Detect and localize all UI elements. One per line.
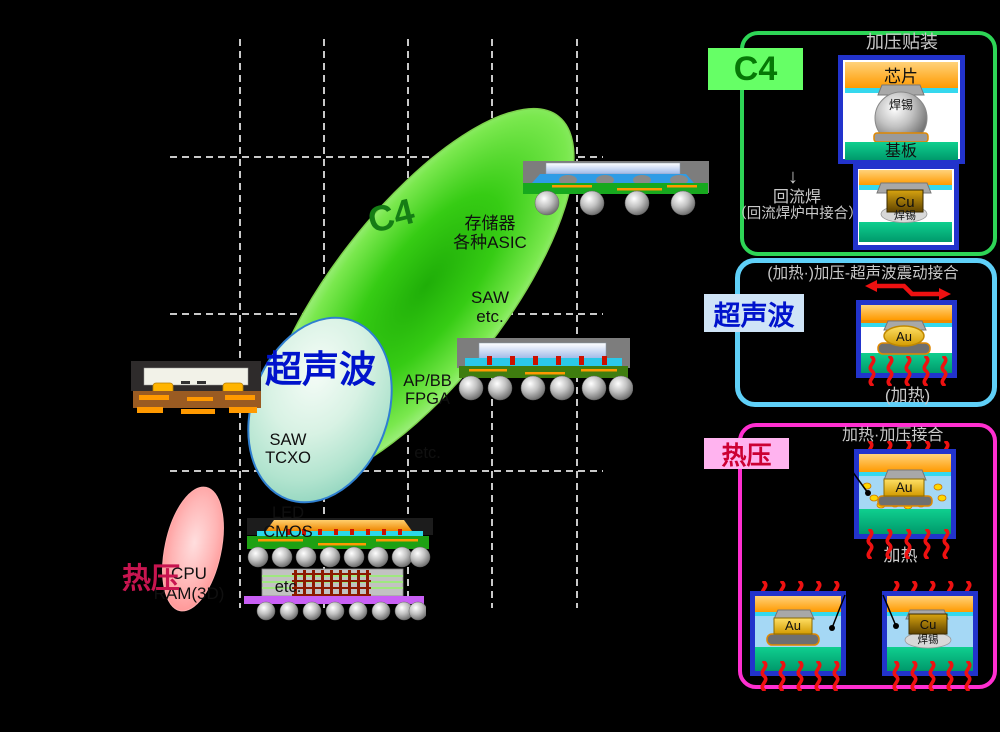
c4-legend-label: C4 xyxy=(708,48,803,90)
callout-dot xyxy=(829,625,835,631)
c4-reflow-line2: （回流焊炉中接合） xyxy=(725,207,870,223)
solder-balls xyxy=(535,191,695,215)
c4-reflow-line1: 回流焊 xyxy=(752,189,842,207)
substrate-band xyxy=(859,222,952,242)
thermo-ncp-diagram: Au xyxy=(850,441,960,567)
substrate-band xyxy=(755,647,841,671)
c4-legend-title: 加压贴装 xyxy=(866,33,938,53)
c4-solder-ball-diagram: 芯片 焊锡 基板 xyxy=(838,55,965,165)
thermo-bubble-label: 热压 xyxy=(122,564,180,596)
ultrasonic-bubble-label: 超声波 xyxy=(265,350,376,391)
saw-device-illustration xyxy=(129,355,265,417)
die-label: 芯片 xyxy=(884,67,918,86)
land-pads xyxy=(137,407,257,414)
die xyxy=(144,368,248,385)
die-band xyxy=(859,454,951,472)
c4-cu-pillar-diagram: Cu 焊锡 xyxy=(853,164,959,250)
au-label: Au xyxy=(785,618,801,633)
reflow-arrow-icon: ↓ xyxy=(788,166,798,188)
thermo-legend-label: 热压 xyxy=(704,438,789,469)
ultrasonic-bond-diagram: Au xyxy=(854,298,959,406)
callout-dot xyxy=(865,490,871,496)
solder-label: 焊锡 xyxy=(889,97,913,112)
c4-bubble-sub-items: AP/BBFPGA etc. xyxy=(390,336,465,498)
cu-label: Cu xyxy=(895,194,914,211)
ultrasonic-legend-label: 超声波 xyxy=(704,294,804,332)
substrate-label: 基板 xyxy=(885,142,917,160)
die-band xyxy=(861,305,952,320)
die xyxy=(546,163,680,174)
solder-label: 焊锡 xyxy=(894,208,916,222)
diagram-canvas: C4 存储器各种ASIC SAWetc. AP/BBFPGA etc. 超声波 … xyxy=(0,0,1000,732)
bond-pad xyxy=(767,634,819,645)
au-label: Au xyxy=(895,479,912,495)
bond-pad xyxy=(878,496,932,506)
cu-label: Cu xyxy=(920,617,937,632)
au-label: Au xyxy=(896,329,912,344)
solder-balls xyxy=(459,376,633,400)
substrate-band xyxy=(859,509,951,534)
substrate-pad xyxy=(874,133,928,142)
ultrasonic-bubble-items: SAWTCXO LEDCMOS etc. xyxy=(248,394,328,633)
thermo-au-diagram: Au xyxy=(746,581,850,703)
flipchip-bga-molded-illustration xyxy=(522,157,710,217)
substrate-band xyxy=(887,647,973,671)
thermo-cu-diagram: Cu 焊锡 xyxy=(878,581,982,703)
callout-dot xyxy=(893,623,899,629)
solder-label: 焊锡 xyxy=(918,633,939,646)
